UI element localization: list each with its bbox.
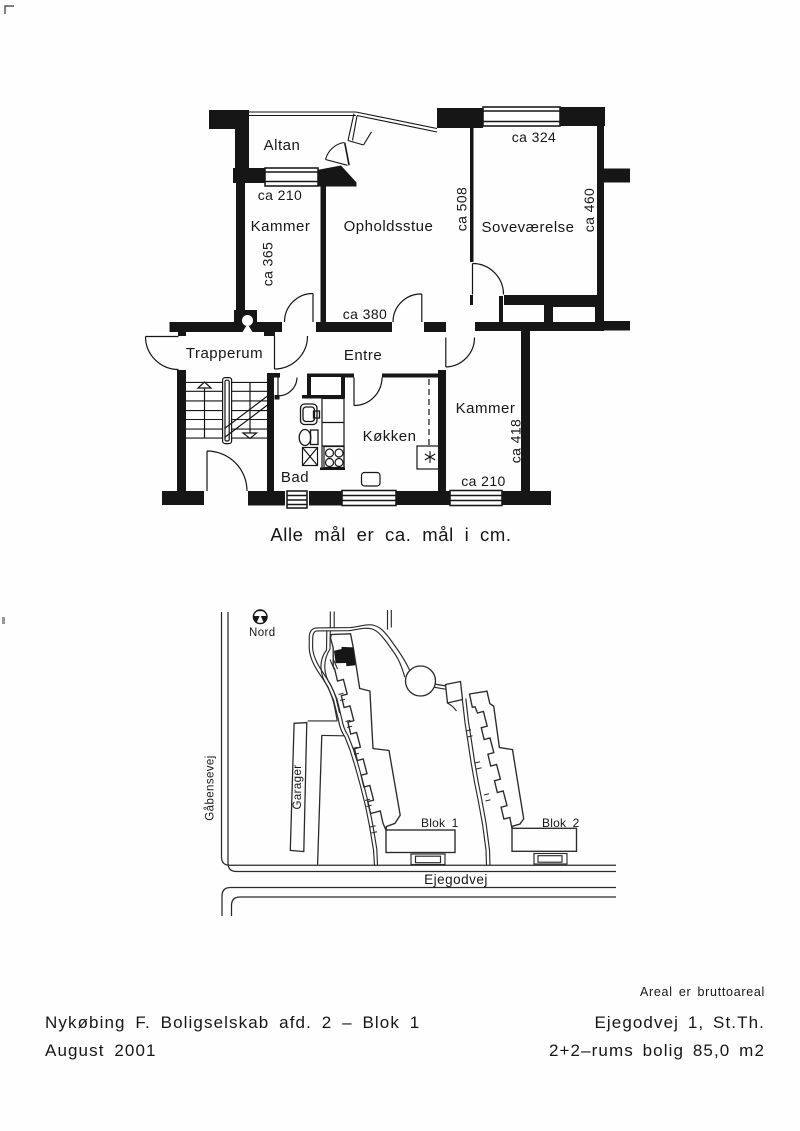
svg-text:2+2–rums bolig 85,0 m2: 2+2–rums bolig 85,0 m2: [549, 1041, 765, 1060]
svg-text:Soveværelse: Soveværelse: [481, 219, 574, 236]
svg-text:Nord: Nord: [249, 627, 276, 639]
svg-text:ca 380: ca 380: [343, 306, 387, 322]
svg-text:Ejegodvej: Ejegodvej: [424, 872, 488, 887]
svg-text:Ejegodvej 1, St.Th.: Ejegodvej 1, St.Th.: [594, 1013, 765, 1032]
svg-text:Garager: Garager: [292, 765, 304, 810]
svg-text:Kammer: Kammer: [456, 400, 516, 417]
svg-text:Alle mål er ca. mål i cm.: Alle mål er ca. mål i cm.: [270, 524, 511, 545]
svg-text:Blok 1: Blok 1: [421, 816, 459, 830]
svg-text:ca 324: ca 324: [512, 129, 556, 145]
svg-text:Kammer: Kammer: [251, 218, 311, 235]
svg-text:Blok 2: Blok 2: [542, 816, 580, 830]
svg-text:Køkken: Køkken: [363, 428, 417, 445]
svg-text:ca 460: ca 460: [581, 188, 597, 232]
svg-text:Entre: Entre: [344, 347, 382, 364]
svg-text:ca 365: ca 365: [260, 242, 276, 286]
svg-text:Bad: Bad: [281, 469, 309, 486]
svg-text:Gåbensevej: Gåbensevej: [205, 755, 217, 820]
svg-text:ca 210: ca 210: [258, 187, 302, 203]
svg-text:Altan: Altan: [264, 137, 301, 154]
svg-text:August 2001: August 2001: [45, 1041, 157, 1060]
svg-text:ca 210: ca 210: [461, 473, 505, 489]
svg-text:Trapperum: Trapperum: [186, 345, 263, 362]
svg-text:Nykøbing F. Boligselskab afd.: Nykøbing F. Boligselskab afd. 2 – Blok 1: [45, 1013, 420, 1032]
svg-text:Opholdsstue: Opholdsstue: [344, 218, 434, 235]
svg-text:Areal er bruttoareal: Areal er bruttoareal: [640, 985, 765, 999]
svg-text:ca 508: ca 508: [454, 187, 470, 231]
svg-text:ca 418: ca 418: [508, 419, 524, 463]
